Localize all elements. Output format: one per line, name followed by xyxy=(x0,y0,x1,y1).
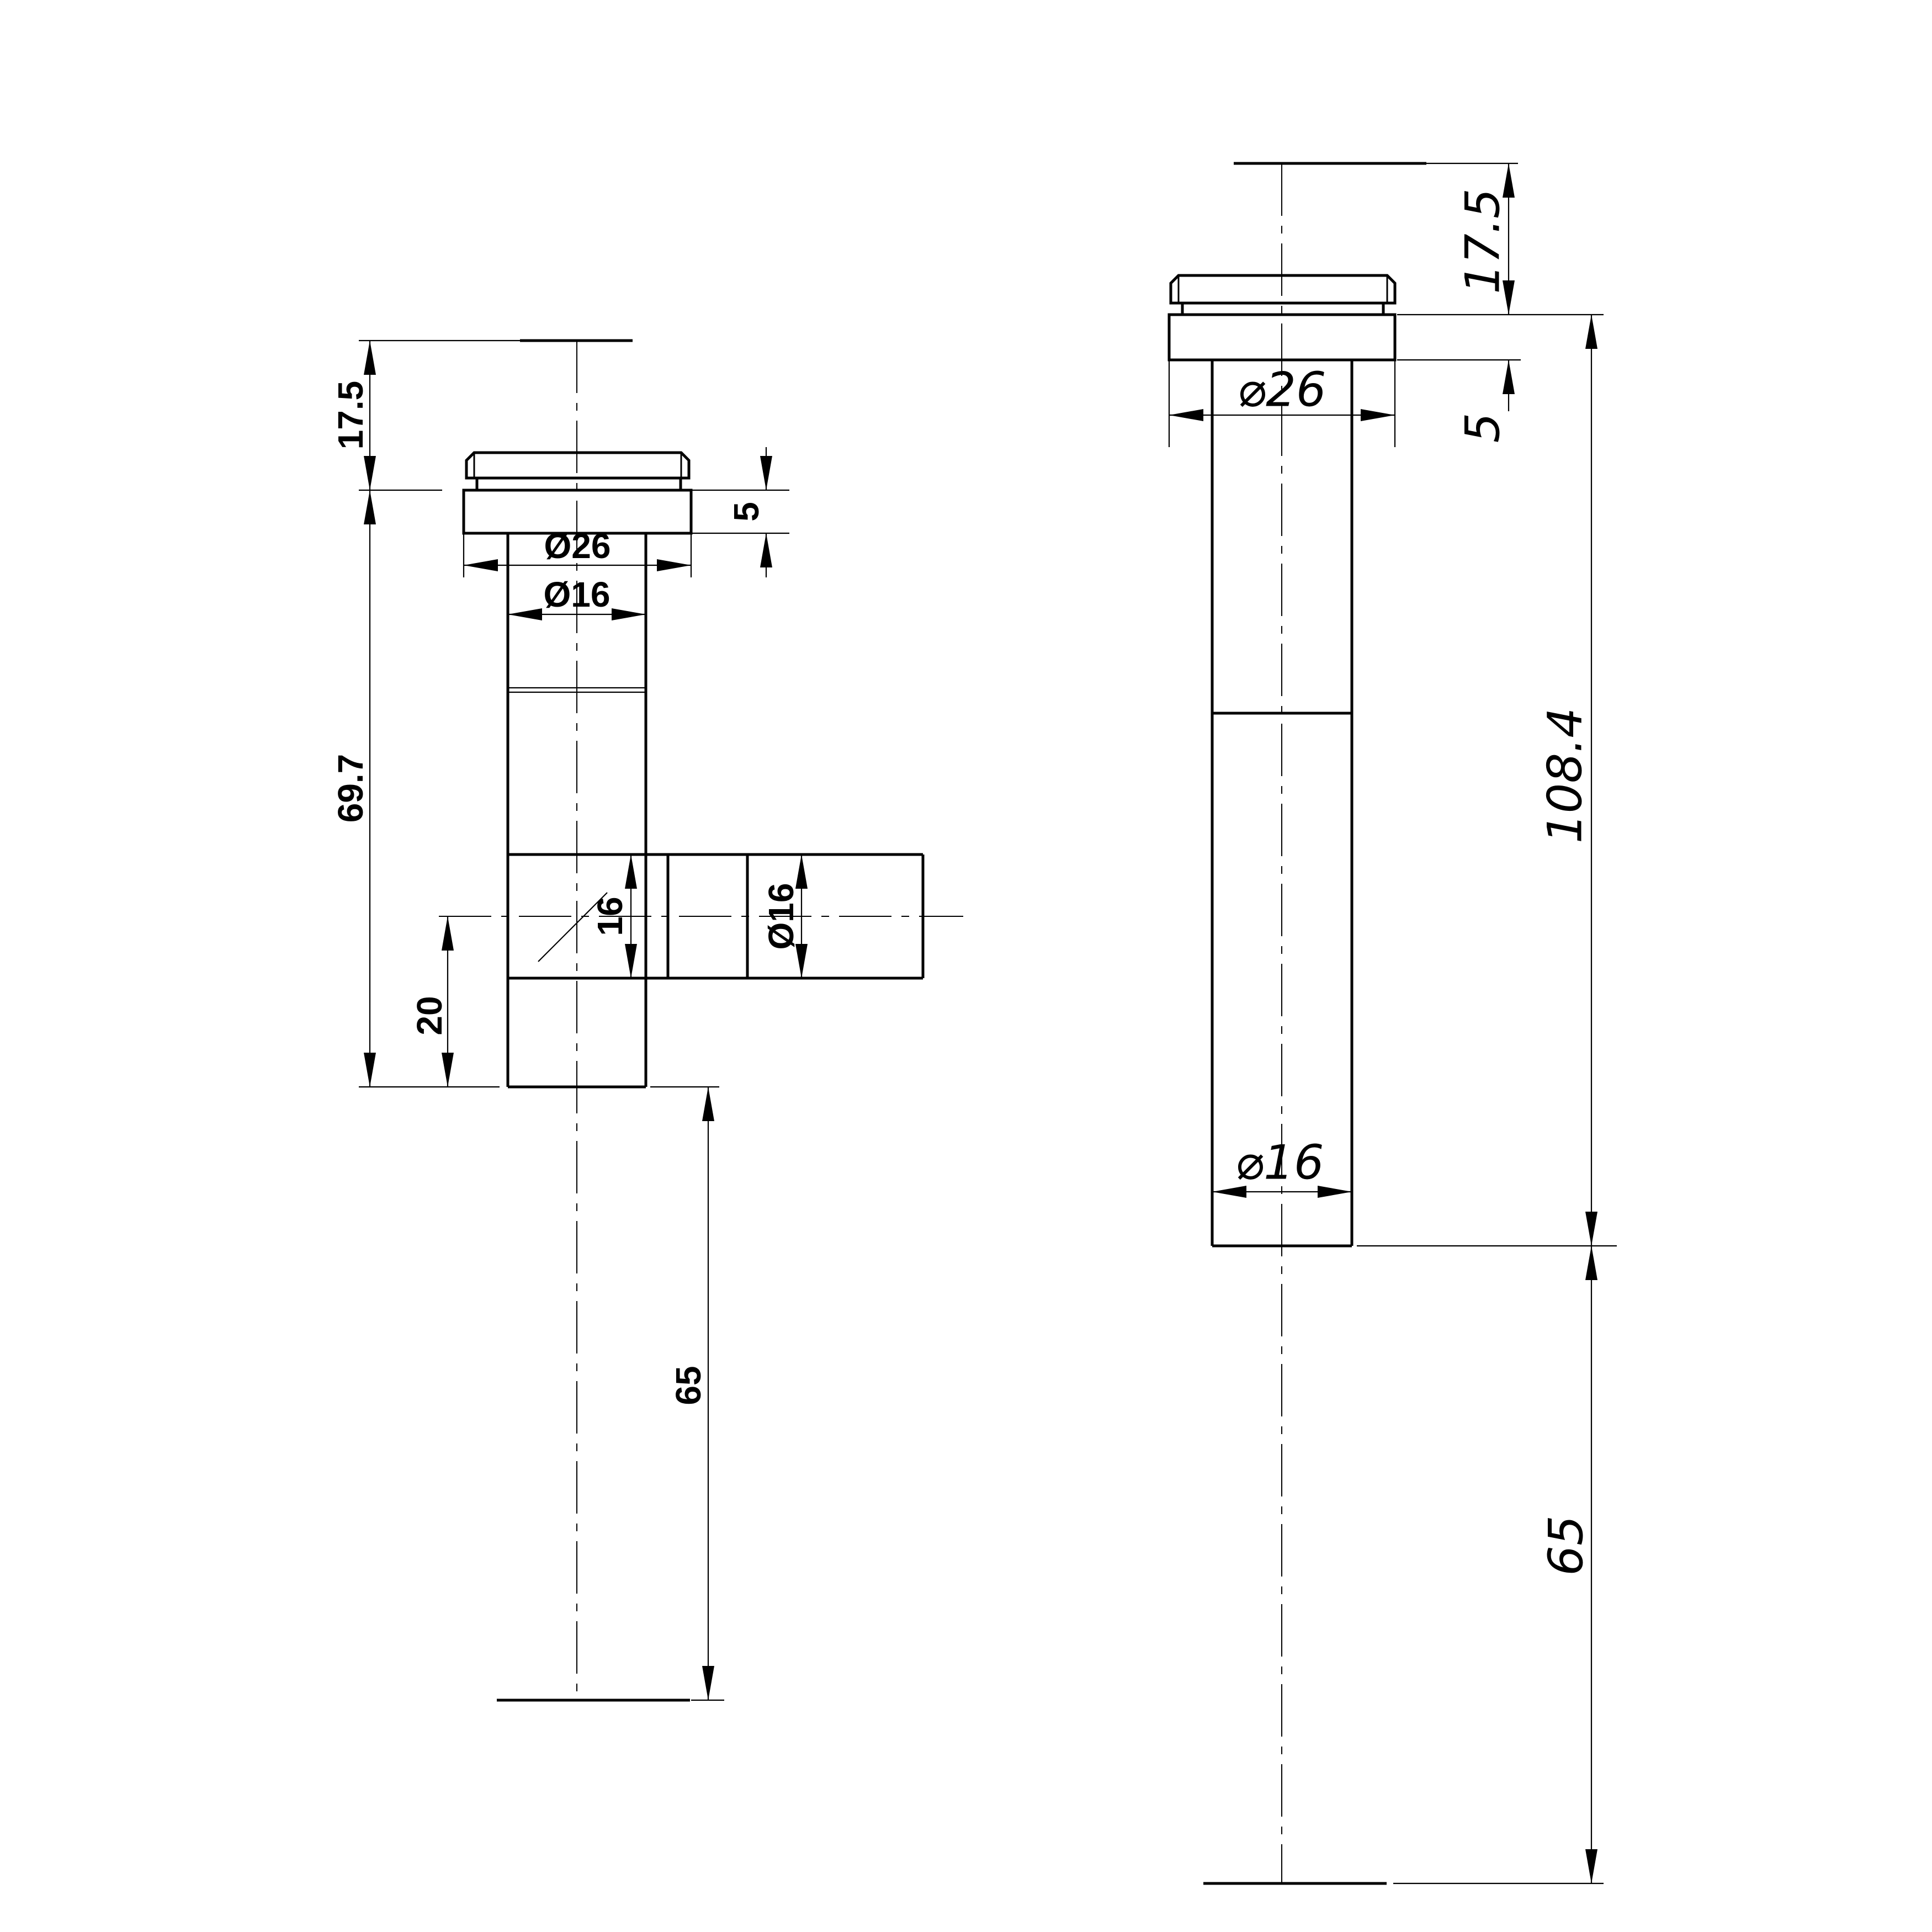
arrow-down-icon xyxy=(1585,1212,1597,1246)
arrow-down-icon xyxy=(625,944,637,978)
right-dim-65-label: 65 xyxy=(1538,1515,1594,1575)
arrow-down-icon xyxy=(442,1053,454,1087)
arrow-right-icon xyxy=(612,608,646,620)
left-view: 17.5 69.7 20 65 Ø26 Ø16 16 xyxy=(331,341,963,1700)
right-dim-17-5-label: 17.5 xyxy=(1455,188,1510,294)
left-dim-69-7-label: 69.7 xyxy=(331,754,370,823)
arrow-up-icon xyxy=(625,854,637,889)
right-dim-5-label: 5 xyxy=(1455,413,1510,443)
arrow-up-icon xyxy=(760,533,772,567)
arrow-up-icon xyxy=(702,1087,714,1121)
arrow-down-icon xyxy=(364,1053,376,1087)
left-dim-16-tee-label: 16 xyxy=(590,896,630,936)
left-dim-dia16-branch-label: Ø16 xyxy=(761,883,801,950)
left-dim-5-label: 5 xyxy=(726,502,766,522)
left-dim-65-label: 65 xyxy=(668,1366,708,1405)
left-dim-17-5-label: 17.5 xyxy=(331,381,370,450)
arrow-up-icon xyxy=(1585,315,1597,349)
arrow-down-icon xyxy=(760,456,772,490)
arrow-right-icon xyxy=(657,559,691,571)
left-cap-outline xyxy=(466,453,689,478)
arrow-up-icon xyxy=(364,490,376,524)
arrow-down-icon xyxy=(364,456,376,490)
arrow-right-icon xyxy=(1361,409,1395,421)
arrow-down-icon xyxy=(1585,1849,1597,1883)
arrow-up-icon xyxy=(364,341,376,375)
right-dim-dia26-label: ⌀26 xyxy=(1237,362,1326,417)
left-dim-20-label: 20 xyxy=(410,996,449,1035)
arrow-up-icon xyxy=(1585,1246,1597,1280)
arrow-left-icon xyxy=(508,608,542,620)
arrow-down-icon xyxy=(702,1666,714,1700)
arrow-up-icon xyxy=(1503,360,1515,394)
arrow-left-icon xyxy=(1169,409,1203,421)
technical-drawing-canvas: 17.5 69.7 20 65 Ø26 Ø16 16 xyxy=(0,0,1932,1932)
right-view: 17.5 5 ⌀26 ⌀16 108.4 65 xyxy=(1169,163,1617,1883)
left-dim-dia26-label: Ø26 xyxy=(544,526,611,566)
right-dim-dia16-label: ⌀16 xyxy=(1235,1135,1324,1190)
left-dim-dia16-label: Ø16 xyxy=(544,575,611,614)
arrow-left-icon xyxy=(464,559,498,571)
right-cap-outline xyxy=(1171,275,1395,303)
arrow-up-icon xyxy=(442,916,454,951)
right-dim-108-4-label: 108.4 xyxy=(1537,708,1593,843)
